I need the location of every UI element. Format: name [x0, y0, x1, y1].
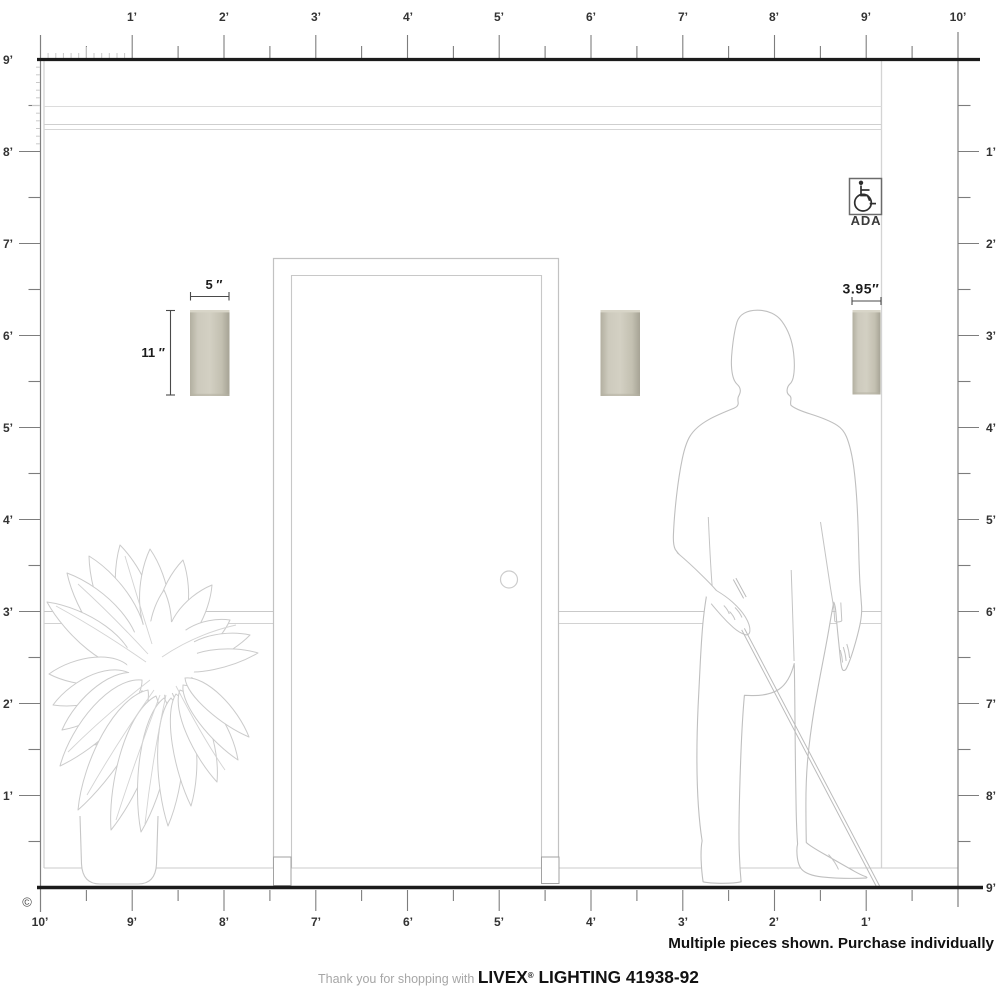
svg-text:1’: 1’: [127, 10, 137, 24]
svg-text:10’: 10’: [950, 10, 967, 24]
svg-text:7’: 7’: [3, 237, 13, 251]
svg-text:7’: 7’: [986, 697, 996, 711]
svg-text:6’: 6’: [403, 915, 413, 929]
svg-text:4’: 4’: [586, 915, 596, 929]
svg-text:6’: 6’: [986, 605, 996, 619]
svg-text:1’: 1’: [861, 915, 871, 929]
svg-text:9’: 9’: [127, 915, 137, 929]
svg-text:3’: 3’: [311, 10, 321, 24]
svg-text:6’: 6’: [3, 329, 13, 343]
svg-text:5’: 5’: [494, 10, 504, 24]
svg-text:10’: 10’: [32, 915, 49, 929]
svg-text:1’: 1’: [3, 789, 13, 803]
svg-text:4’: 4’: [403, 10, 413, 24]
svg-text:7’: 7’: [678, 10, 688, 24]
svg-text:8’: 8’: [769, 10, 779, 24]
svg-text:Multiple pieces shown. Purchas: Multiple pieces shown. Purchase individu…: [668, 935, 994, 952]
svg-text:3’: 3’: [986, 329, 996, 343]
svg-text:1’: 1’: [986, 145, 996, 159]
svg-text:9’: 9’: [986, 881, 996, 895]
svg-text:7’: 7’: [311, 915, 321, 929]
svg-text:9’: 9’: [861, 10, 871, 24]
svg-text:5’: 5’: [494, 915, 504, 929]
svg-text:3.95″: 3.95″: [843, 281, 880, 297]
svg-text:8’: 8’: [219, 915, 229, 929]
svg-text:5 ″: 5 ″: [205, 277, 222, 292]
svg-text:©: ©: [22, 895, 32, 910]
svg-text:ADA: ADA: [851, 213, 882, 228]
svg-text:3’: 3’: [678, 915, 688, 929]
svg-text:2’: 2’: [986, 237, 996, 251]
svg-text:8’: 8’: [3, 145, 13, 159]
svg-text:9’: 9’: [3, 53, 13, 67]
svg-text:5’: 5’: [3, 421, 13, 435]
svg-text:11 ″: 11 ″: [141, 345, 165, 360]
svg-text:5’: 5’: [986, 513, 996, 527]
svg-text:3’: 3’: [3, 605, 13, 619]
svg-text:2’: 2’: [769, 915, 779, 929]
svg-text:2’: 2’: [219, 10, 229, 24]
svg-text:2’: 2’: [3, 697, 13, 711]
svg-text:6’: 6’: [586, 10, 596, 24]
svg-text:8’: 8’: [986, 789, 996, 803]
svg-text:4’: 4’: [3, 513, 13, 527]
svg-text:4’: 4’: [986, 421, 996, 435]
